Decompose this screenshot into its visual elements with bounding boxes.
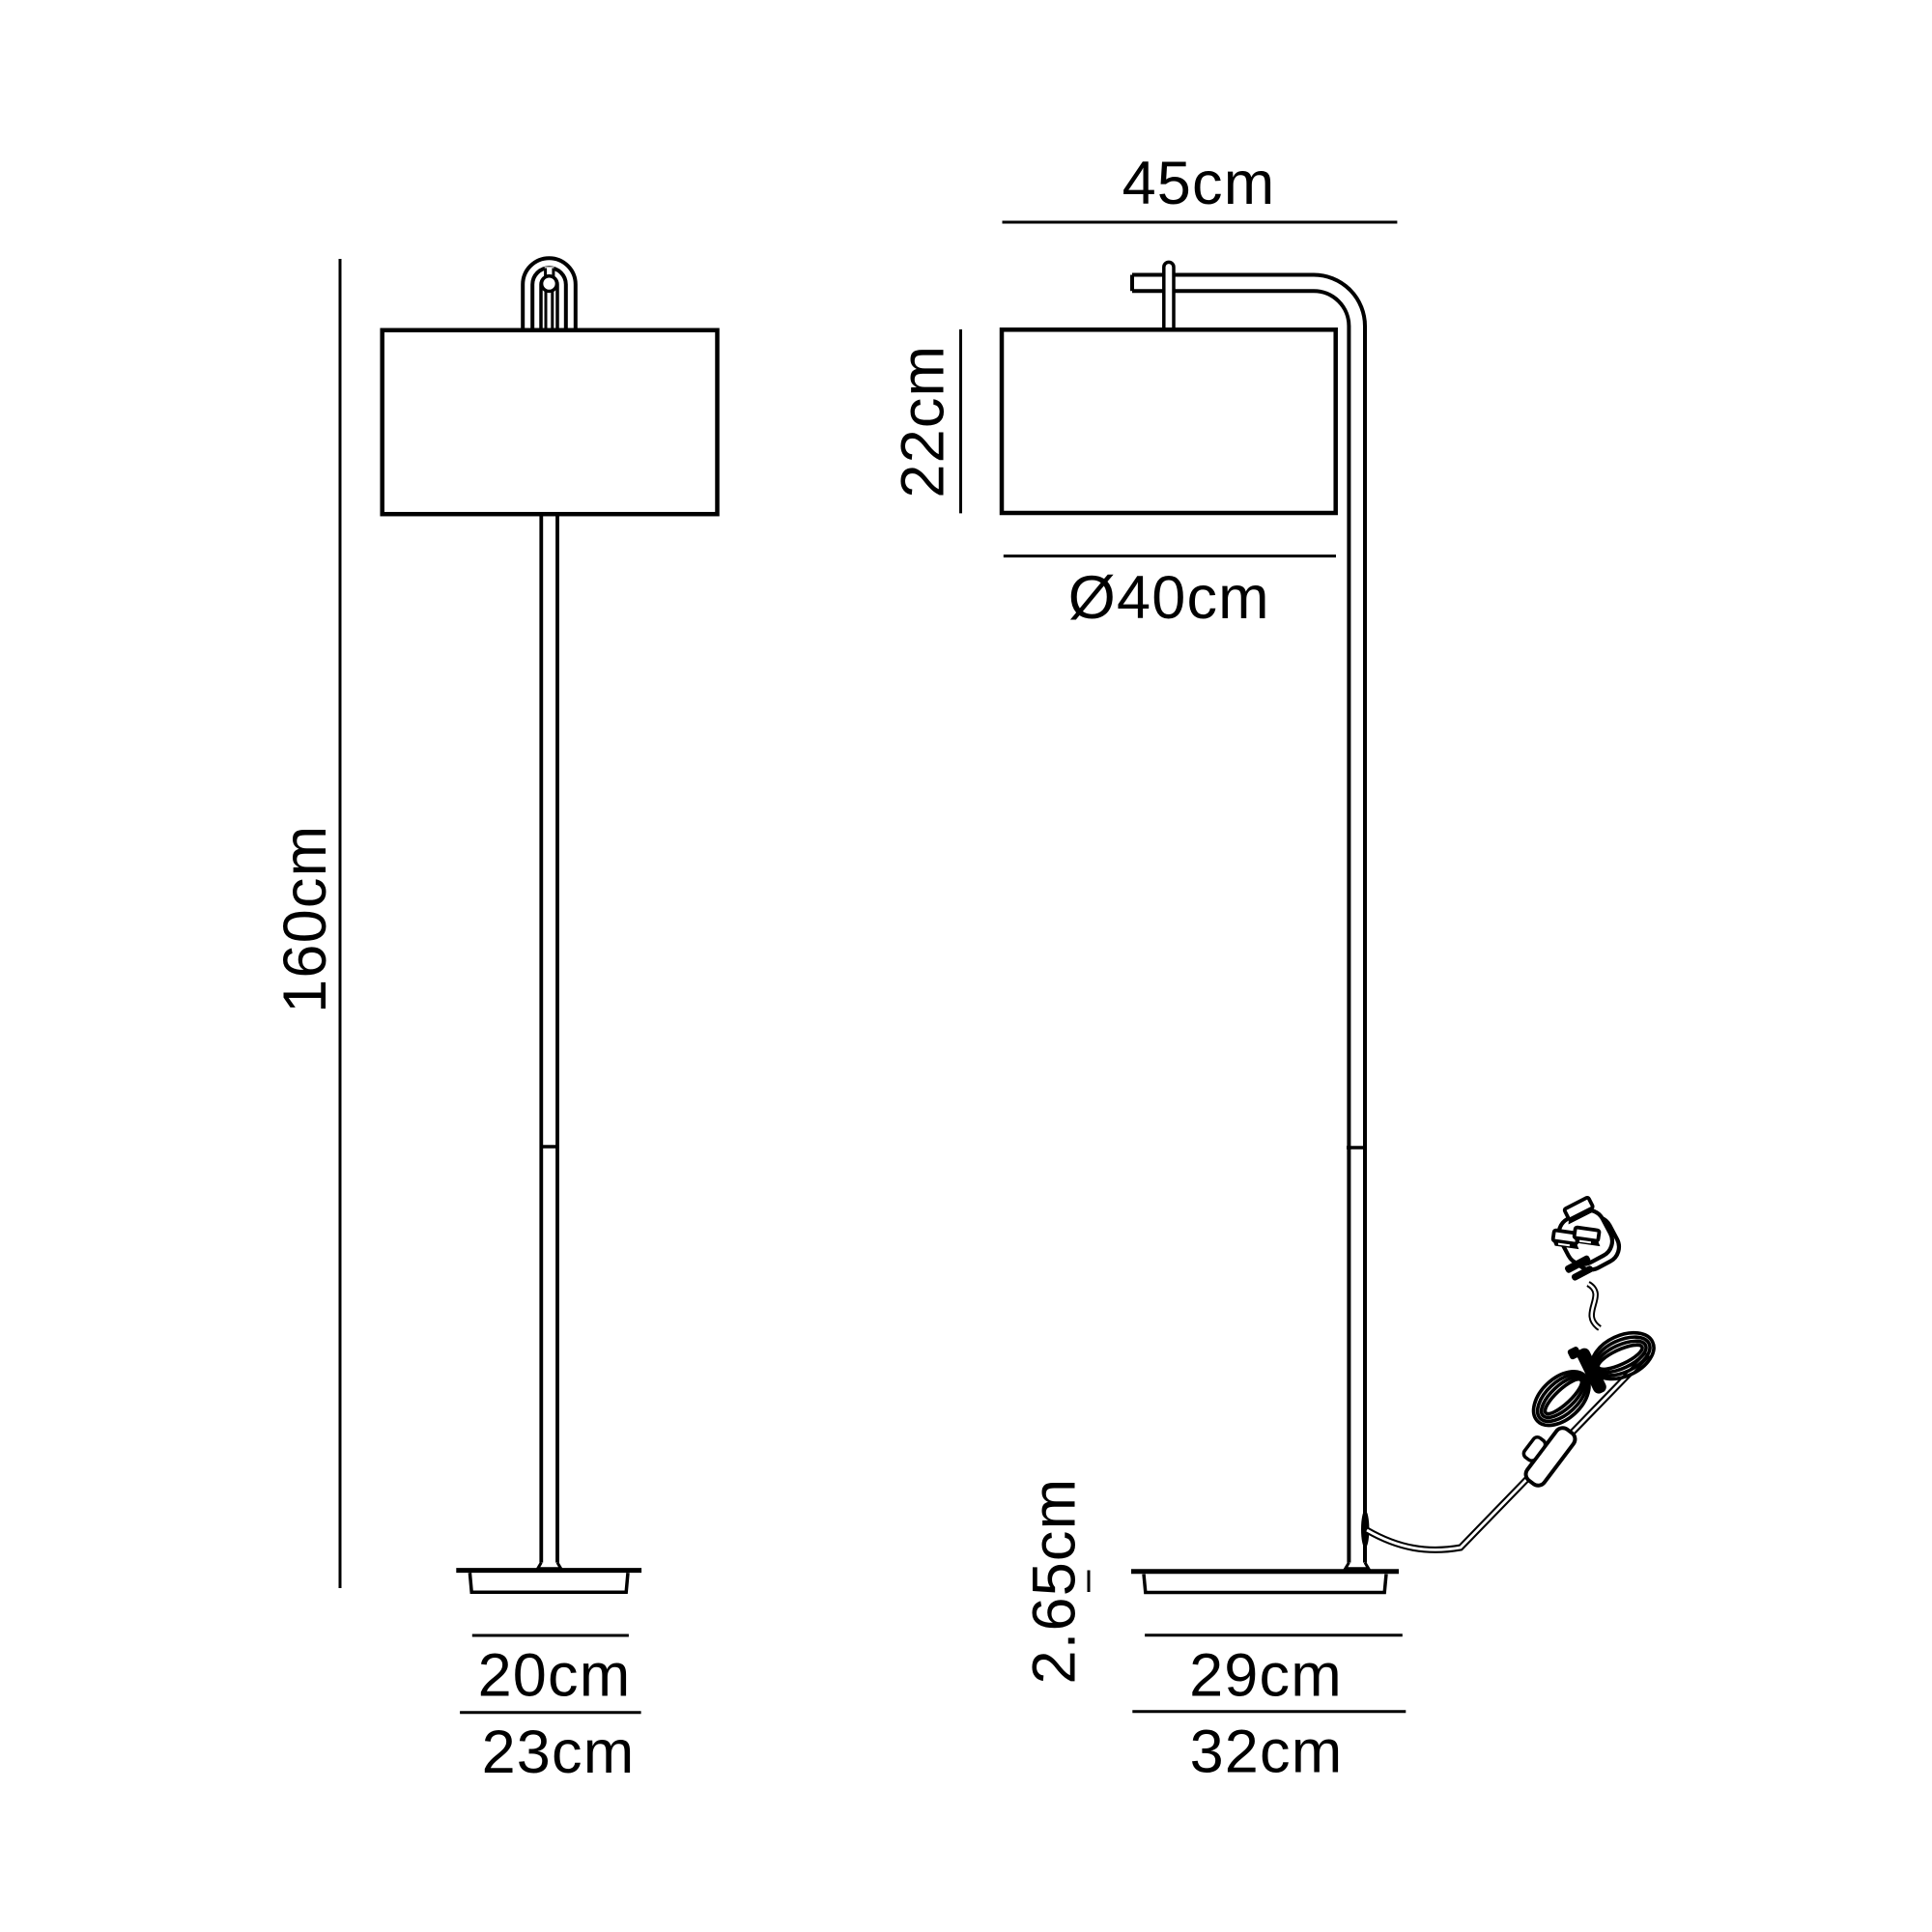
svg-text:Ø40cm: Ø40cm: [1068, 564, 1270, 632]
svg-text:20cm: 20cm: [478, 1642, 632, 1710]
svg-text:160cm: 160cm: [271, 825, 339, 1013]
svg-text:22cm: 22cm: [890, 345, 957, 498]
svg-text:32cm: 32cm: [1190, 1719, 1344, 1786]
svg-text:2.65cm: 2.65cm: [1021, 1478, 1089, 1685]
svg-text:45cm: 45cm: [1122, 150, 1276, 217]
svg-text:23cm: 23cm: [482, 1719, 636, 1786]
svg-text:29cm: 29cm: [1189, 1641, 1343, 1709]
